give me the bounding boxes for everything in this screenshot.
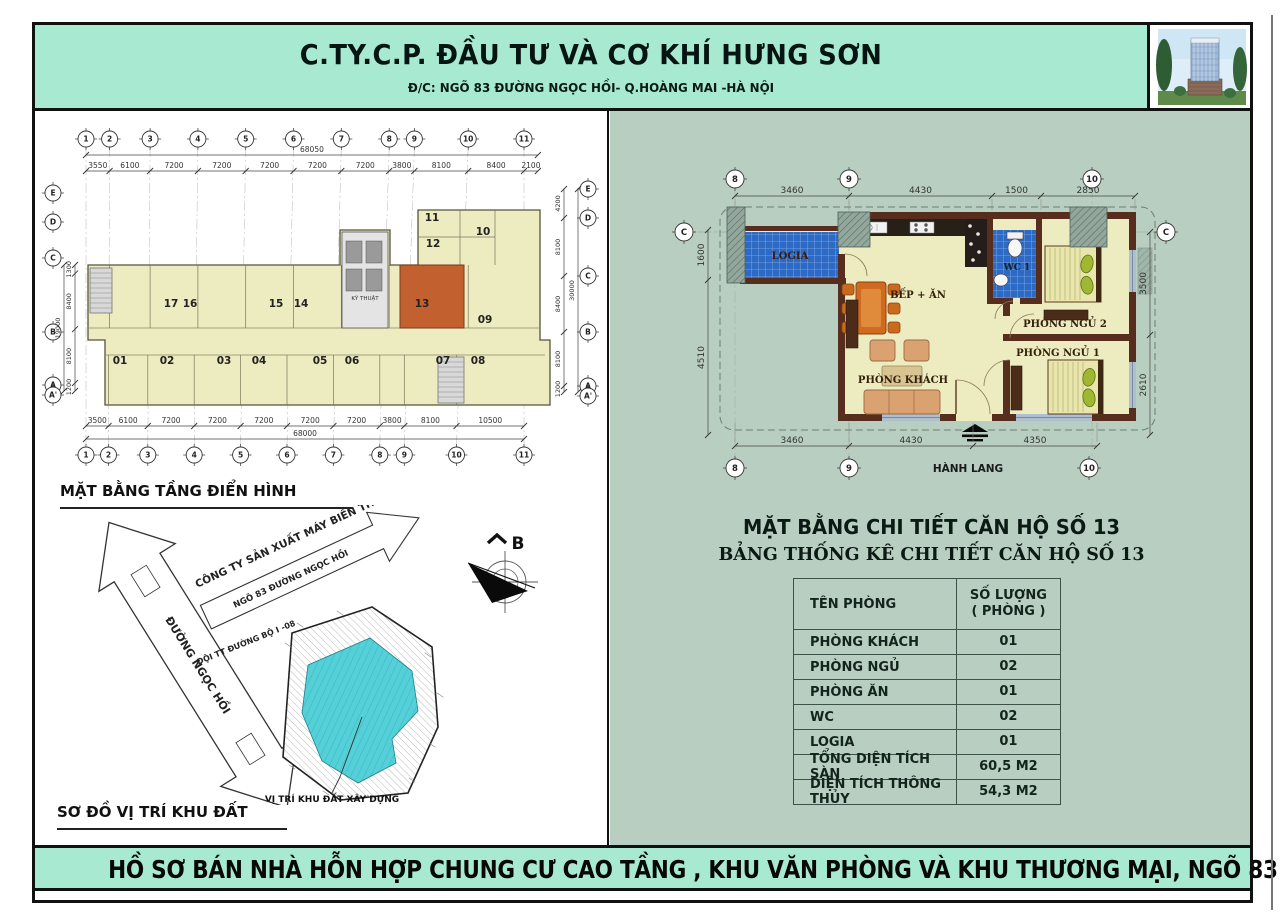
grid-bubble-label: 11 — [519, 451, 529, 460]
room-name-cell: TỔNG DIỆN TÍCH SÀN — [794, 755, 957, 779]
dimension-label: 8100 — [554, 239, 562, 256]
grid-bubble: 2 — [99, 128, 121, 150]
grid-bubble-label: 3 — [145, 451, 150, 460]
footer-title-wrap: HỒ SƠ BÁN NHÀ HỖN HỢP CHUNG CƯ CAO TẦNG … — [35, 855, 1253, 884]
stair-core — [90, 268, 112, 313]
grid-bubble-label: 11 — [519, 135, 529, 144]
grid-bubble: 8 — [723, 167, 747, 191]
scan-edge-line — [1271, 15, 1273, 910]
grid-bubble-label: C — [585, 272, 591, 281]
panel-divider — [607, 111, 609, 845]
dimension-label: 7200 — [308, 161, 327, 170]
grid-bubble-label: C — [50, 254, 56, 263]
grid-bubble: 4 — [183, 444, 205, 466]
typical-floor-plan: KỸ THUẬT01020304050607080910111213141516… — [40, 115, 602, 507]
grid-bubble-label: C — [1163, 228, 1169, 238]
grid-bubble-label: 9 — [846, 175, 852, 185]
grid-bubble-label: 7 — [331, 451, 336, 460]
stats-table-row: PHÒNG NGỦ02 — [793, 655, 1061, 680]
grid-bubble: 10 — [1077, 456, 1101, 480]
dimension-label: 3500 — [88, 416, 107, 425]
grid-bubble-label: D — [585, 214, 591, 223]
dimension-label: 7200 — [347, 416, 366, 425]
room-qty-cell: 01 — [957, 680, 1060, 704]
grid-bubble: C — [1154, 220, 1178, 244]
grid-bubble-label: 10 — [451, 451, 461, 460]
dimension-label: 1500 — [1005, 186, 1028, 196]
grid-bubble-label: 9 — [412, 135, 417, 144]
unit-number: 09 — [478, 314, 493, 326]
grid-bubble-label: 8 — [377, 451, 382, 460]
stats-header-qty: SỐ LƯỢNG( PHÒNG ) — [957, 579, 1060, 629]
unit-number: 13 — [415, 298, 430, 310]
grid-bubble-label: 5 — [243, 135, 248, 144]
grid-bubble: C — [42, 247, 64, 269]
grid-bubble-label: 8 — [732, 464, 738, 474]
unit-number: 07 — [436, 355, 451, 367]
unit-13-detail-plan: LOGIAWC 1BẾP + ĂNPHÒNG KHÁCHPHÒNG NGỦ 2P… — [660, 150, 1192, 502]
dimension-label: 1200 — [65, 379, 73, 396]
grid-bubble: E — [42, 182, 64, 204]
core-label: KỸ THUẬT — [351, 295, 379, 302]
north-arrow-icon: B — [468, 534, 538, 613]
unit-number: 03 — [217, 355, 232, 367]
grid-bubble: 1 — [75, 444, 97, 466]
grid-bubble-label: 6 — [284, 451, 289, 460]
grid-bubble-label: 9 — [846, 464, 852, 474]
room-label-wc: WC 1 — [1003, 263, 1031, 273]
site-map-caption: SƠ ĐỒ VỊ TRÍ KHU ĐẤT — [57, 803, 287, 830]
company-address-wrap: Đ/C: NGÕ 83 ĐƯỜNG NGỌC HỒI- Q.HOÀNG MAI … — [35, 80, 1147, 95]
grid-bubble-label: 7 — [339, 135, 344, 144]
grid-bubble: C — [672, 220, 696, 244]
dimension-label: 1200 — [554, 381, 562, 398]
room-label-living: PHÒNG KHÁCH — [858, 374, 948, 386]
grid-bubble: 10 — [457, 128, 479, 150]
unit-plan-title-wrap: MẶT BẰNG CHI TIẾT CĂN HỘ SỐ 13 — [610, 515, 1253, 539]
entry-arrow-icon — [962, 424, 988, 441]
dimension-label: 2610 — [1139, 373, 1149, 396]
room-qty-cell: 02 — [957, 705, 1060, 729]
grid-bubble: 9 — [393, 444, 415, 466]
room-label-bedroom2: PHÒNG NGỦ 2 — [1023, 317, 1107, 330]
unit-number: 05 — [313, 355, 328, 367]
stats-table: TÊN PHÒNGSỐ LƯỢNG( PHÒNG )PHÒNG KHÁCH01P… — [793, 578, 1061, 805]
grid-bubble: 5 — [235, 128, 257, 150]
grid-bubble-label: 9 — [402, 451, 407, 460]
grid-bubble: D — [42, 211, 64, 233]
grid-bubble-label: 1 — [83, 135, 88, 144]
room-label-kitchen: BẾP + ĂN — [890, 288, 946, 301]
grid-bubble-label: 2 — [106, 451, 111, 460]
company-name: C.TY.C.P. ĐẦU TƯ VÀ CƠ KHÍ HƯNG SƠN — [79, 38, 1102, 71]
grid-bubble: 8 — [723, 456, 747, 480]
room-label-logia: LOGIA — [772, 251, 809, 262]
dimension-label: 8100 — [554, 351, 562, 368]
bed-bedroom-1 — [1048, 360, 1103, 414]
grid-bubble: 3 — [139, 128, 161, 150]
column-hatch — [1070, 207, 1107, 247]
dimension-label: 7200 — [161, 416, 180, 425]
unit-number: 10 — [476, 226, 491, 238]
dimension-label: 7200 — [164, 161, 183, 170]
dimension-label: 8400 — [554, 296, 562, 313]
dimension-label: 3800 — [383, 416, 402, 425]
grid-bubble-label: 10 — [463, 135, 473, 144]
grid-bubble: 2 — [98, 444, 120, 466]
stats-table-row: WC02 — [793, 705, 1061, 730]
dimension-label: 3460 — [781, 436, 804, 446]
grid-bubble: 4 — [187, 128, 209, 150]
dimension-label: 7200 — [301, 416, 320, 425]
unit-number: 17 — [164, 298, 179, 310]
wardrobe — [846, 300, 858, 348]
unit-number: 12 — [426, 238, 441, 250]
unit-13-highlight — [400, 265, 464, 328]
bed-bedroom-2 — [1045, 246, 1101, 302]
building-rendering-image — [1150, 25, 1253, 108]
dimension-label: 8100 — [432, 161, 451, 170]
dimension-label: 4430 — [909, 186, 932, 196]
grid-bubble-label: 6 — [291, 135, 296, 144]
dimension-label: 4430 — [900, 436, 923, 446]
site-location-map: ĐƯỜNG NGỌC HỒINGÕ 83 ĐƯỜNG NGỌC HỒICÔNG … — [40, 505, 605, 805]
grid-bubble: 8 — [378, 128, 400, 150]
company-address: Đ/C: NGÕ 83 ĐƯỜNG NGỌC HỒI- Q.HOÀNG MAI … — [63, 80, 1119, 95]
grid-bubble: 7 — [322, 444, 344, 466]
room-name-cell: DIỆN TÍCH THÔNG THỦY — [794, 780, 957, 804]
header-divider — [32, 108, 1253, 111]
grid-bubble: 9 — [403, 128, 425, 150]
logo-divider — [1147, 22, 1150, 111]
room-name-cell: LOGIA — [794, 730, 957, 754]
dimension-label: 1600 — [697, 243, 707, 266]
dimension-label: 6100 — [120, 161, 139, 170]
grid-bubble-label: 4 — [195, 135, 200, 144]
grid-bubble: 1 — [75, 128, 97, 150]
grid-bubble: C — [577, 265, 599, 287]
grid-bubble-label: 8 — [387, 135, 392, 144]
dimension-label: 7200 — [260, 161, 279, 170]
grid-bubble-label: 8 — [732, 175, 738, 185]
grid-bubble-label: 10 — [1083, 464, 1095, 474]
grid-bubble: D — [577, 207, 599, 229]
elevator-core: KỸ THUẬT — [342, 232, 388, 328]
dimension-label: 3550 — [88, 161, 107, 170]
grid-bubble: 7 — [330, 128, 352, 150]
grid-bubble: 5 — [230, 444, 252, 466]
unit-number: 04 — [252, 355, 267, 367]
unit-number: 11 — [425, 212, 440, 224]
dimension-label: 3460 — [781, 186, 804, 196]
unit-number: 02 — [160, 355, 175, 367]
grid-bubble-label: 1 — [83, 451, 88, 460]
corridor-label: HÀNH LANG — [933, 462, 1003, 475]
stats-table-row: DIỆN TÍCH THÔNG THỦY54,3 M2 — [793, 780, 1061, 805]
room-name-cell: PHÒNG KHÁCH — [794, 630, 957, 654]
dimension-label: 4510 — [697, 346, 707, 369]
grid-bubble-label: 5 — [238, 451, 243, 460]
grid-bubble: 11 — [513, 128, 535, 150]
room-name-cell: PHÒNG NGỦ — [794, 655, 957, 679]
dimension-label: 3500 — [1139, 272, 1149, 295]
dimension-total-label: 68050 — [300, 145, 324, 154]
unit-number: 14 — [294, 298, 309, 310]
room-qty-cell: 54,3 M2 — [957, 780, 1060, 804]
unit-number: 06 — [345, 355, 360, 367]
column-hatch — [727, 207, 745, 283]
grid-bubble-label: 10 — [1086, 175, 1098, 185]
dimension-label: 7200 — [254, 416, 273, 425]
grid-bubble: B — [577, 321, 599, 343]
logo-box — [1150, 25, 1253, 108]
unit-number: 15 — [269, 298, 284, 310]
grid-bubble-label: A' — [49, 391, 57, 400]
dimension-label: 2100 — [521, 161, 540, 170]
dimension-label: 8400 — [487, 161, 506, 170]
footer-title: HỒ SƠ BÁN NHÀ HỖN HỢP CHUNG CƯ CAO TẦNG … — [108, 855, 1180, 884]
grid-bubble-label: E — [585, 185, 590, 194]
room-name-cell: WC — [794, 705, 957, 729]
grid-bubble: 6 — [276, 444, 298, 466]
stats-table-row: PHÒNG KHÁCH01 — [793, 630, 1061, 655]
dimension-label: 8100 — [421, 416, 440, 425]
footer-divider-top — [32, 845, 1253, 848]
grid-bubble-label: D — [50, 218, 56, 227]
dimension-total-label: 19000 — [54, 318, 62, 339]
room-qty-cell: 02 — [957, 655, 1060, 679]
dimension-label: 6100 — [119, 416, 138, 425]
grid-bubble: 8 — [369, 444, 391, 466]
grid-bubble-label: 4 — [192, 451, 197, 460]
wardrobe — [1011, 366, 1022, 410]
dimension-total-label: 30000 — [568, 280, 576, 301]
dimension-label: 1300 — [65, 261, 73, 278]
stats-table-row: PHÒNG ĂN01 — [793, 680, 1061, 705]
unit-number: 16 — [183, 298, 198, 310]
stats-table-header-row: TÊN PHÒNGSỐ LƯỢNG( PHÒNG ) — [793, 578, 1061, 630]
grid-bubble: 3 — [137, 444, 159, 466]
page-title: C.TY.C.P. ĐẦU TƯ VÀ CƠ KHÍ HƯNG SƠN — [35, 38, 1147, 71]
dimension-total-label: 68000 — [293, 429, 317, 438]
stats-header-name: TÊN PHÒNG — [794, 579, 957, 629]
grid-bubble-label: E — [50, 189, 55, 198]
grid-bubble-label: 3 — [147, 135, 152, 144]
dimension-label: 4200 — [554, 195, 562, 212]
stats-table-title-wrap: BẢNG THỐNG KÊ CHI TIẾT CĂN HỘ SỐ 13 — [610, 545, 1253, 565]
grid-bubble: 9 — [837, 167, 861, 191]
dimension-label: 4350 — [1024, 436, 1047, 446]
unit-number: 08 — [471, 355, 486, 367]
dimension-label: 7200 — [356, 161, 375, 170]
building-outline — [88, 210, 550, 405]
dimension-label: 8100 — [65, 348, 73, 365]
room-qty-cell: 60,5 M2 — [957, 755, 1060, 779]
grid-bubble: 11 — [513, 444, 535, 466]
grid-bubble: E — [577, 178, 599, 200]
dimension-label: 8400 — [65, 293, 73, 310]
grid-bubble: 9 — [837, 456, 861, 480]
dimension-label: 7200 — [212, 161, 231, 170]
north-label: B — [512, 534, 525, 554]
column-hatch — [838, 212, 870, 247]
dimension-label: 10500 — [478, 416, 502, 425]
stats-table-title: BẢNG THỐNG KÊ CHI TIẾT CĂN HỘ SỐ 13 — [610, 545, 1253, 565]
grid-bubble-label: 2 — [107, 135, 112, 144]
technical-shaft — [965, 219, 987, 267]
unit-number: 01 — [113, 355, 128, 367]
drawing-sheet: C.TY.C.P. ĐẦU TƯ VÀ CƠ KHÍ HƯNG SƠN Đ/C:… — [0, 0, 1280, 917]
room-name-cell: PHÒNG ĂN — [794, 680, 957, 704]
footer-divider-bottom — [32, 888, 1253, 891]
dimension-label: 7200 — [208, 416, 227, 425]
unit-plan-title: MẶT BẰNG CHI TIẾT CĂN HỘ SỐ 13 — [620, 515, 1244, 539]
room-qty-cell: 01 — [957, 730, 1060, 754]
room-label-bedroom1: PHÒNG NGỦ 1 — [1016, 346, 1100, 359]
room-qty-cell: 01 — [957, 630, 1060, 654]
grid-bubble: 10 — [446, 444, 468, 466]
grid-bubble-label: B — [585, 328, 591, 337]
grid-bubble-label: A' — [584, 392, 592, 401]
dimension-label: 3800 — [392, 161, 411, 170]
grid-bubble-label: C — [681, 228, 687, 238]
